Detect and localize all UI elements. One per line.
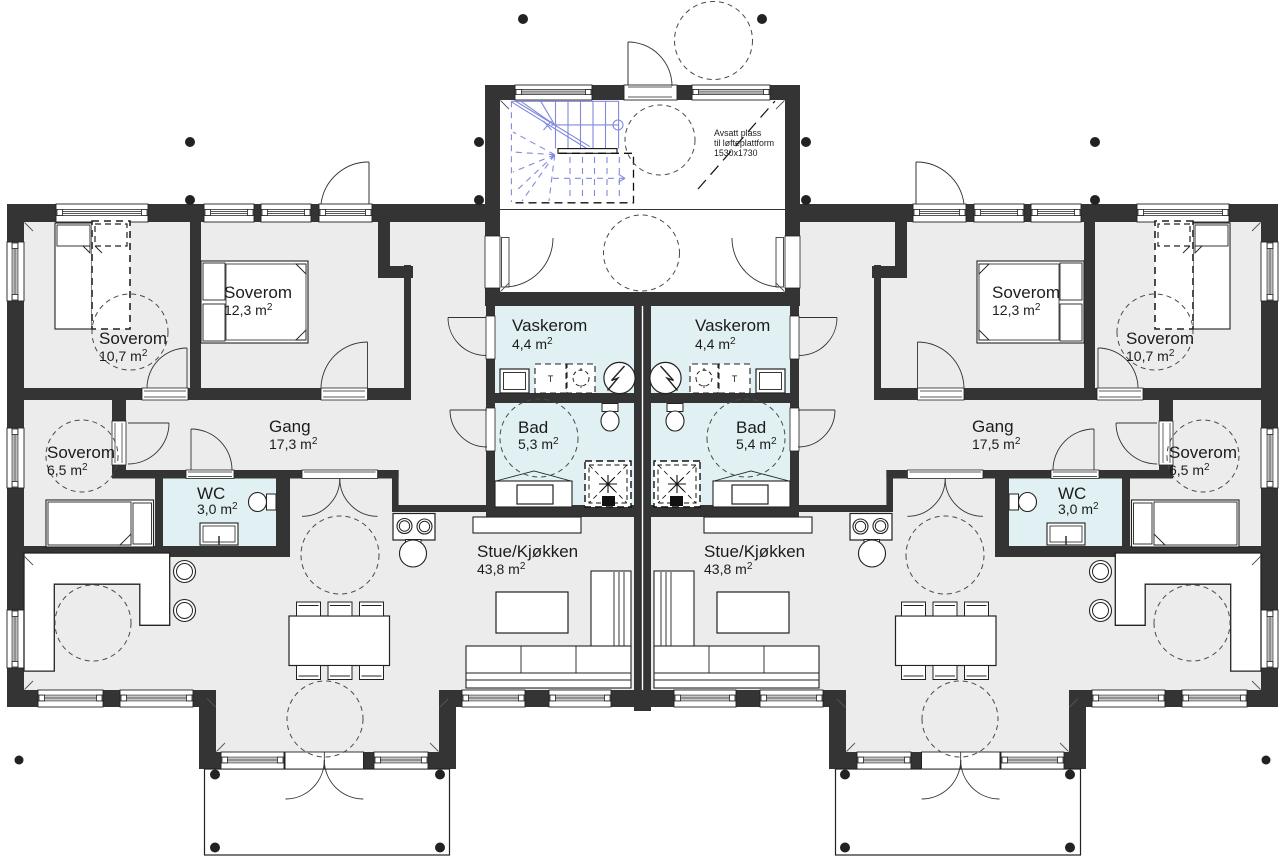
- svg-text:6,5 m2: 6,5 m2: [47, 462, 88, 478]
- svg-text:Soverom: Soverom: [992, 283, 1060, 302]
- svg-text:Soverom: Soverom: [1169, 443, 1237, 462]
- svg-text:Stue/Kjøkken: Stue/Kjøkken: [704, 542, 805, 561]
- svg-text:12,3 m2: 12,3 m2: [992, 302, 1041, 318]
- svg-text:Soverom: Soverom: [1126, 329, 1194, 348]
- svg-text:6,5 m2: 6,5 m2: [1169, 462, 1210, 478]
- svg-text:17,5 m2: 17,5 m2: [972, 436, 1021, 452]
- svg-text:Vaskerom: Vaskerom: [512, 316, 587, 335]
- svg-text:Soverom: Soverom: [99, 329, 167, 348]
- svg-text:T: T: [732, 374, 738, 384]
- svg-text:T: T: [548, 374, 554, 384]
- svg-text:til løfteplattform: til løfteplattform: [714, 138, 774, 148]
- svg-text:12,3 m2: 12,3 m2: [224, 302, 273, 318]
- svg-text:5,3 m2: 5,3 m2: [518, 436, 559, 452]
- svg-text:5,4 m2: 5,4 m2: [736, 436, 777, 452]
- svg-text:10,7 m2: 10,7 m2: [1126, 348, 1175, 364]
- svg-text:10,7 m2: 10,7 m2: [99, 348, 148, 364]
- svg-text:17,3 m2: 17,3 m2: [269, 436, 318, 452]
- svg-text:Gang: Gang: [269, 417, 311, 436]
- svg-text:Bad: Bad: [518, 418, 548, 437]
- svg-text:3,0 m2: 3,0 m2: [197, 501, 238, 517]
- svg-text:4,4 m2: 4,4 m2: [695, 336, 736, 352]
- svg-text:43,8 m2: 43,8 m2: [704, 561, 753, 577]
- svg-text:Bad: Bad: [736, 418, 766, 437]
- svg-text:43,8 m2: 43,8 m2: [477, 561, 526, 577]
- svg-text:4,4 m2: 4,4 m2: [512, 336, 553, 352]
- svg-text:Soverom: Soverom: [47, 443, 115, 462]
- svg-text:Avsatt plass: Avsatt plass: [714, 128, 762, 138]
- svg-text:Soverom: Soverom: [224, 283, 292, 302]
- svg-text:Stue/Kjøkken: Stue/Kjøkken: [477, 542, 578, 561]
- svg-text:Gang: Gang: [972, 417, 1014, 436]
- svg-text:3,0 m2: 3,0 m2: [1058, 501, 1099, 517]
- svg-text:1530x1730: 1530x1730: [714, 148, 758, 158]
- svg-text:Vaskerom: Vaskerom: [695, 316, 770, 335]
